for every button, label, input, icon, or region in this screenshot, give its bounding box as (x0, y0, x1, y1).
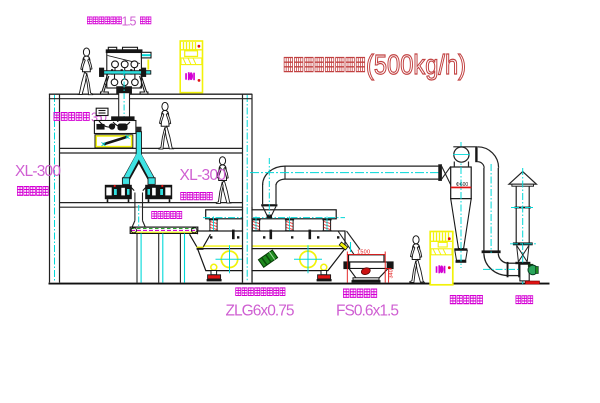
svg-text:1500: 1500 (357, 250, 370, 256)
svg-text:XL-300: XL-300 (180, 167, 227, 184)
svg-text:FS0.6x1.5: FS0.6x1.5 (336, 303, 399, 320)
svg-text:ZLG6x0.75: ZLG6x0.75 (226, 303, 295, 320)
svg-text:1.5: 1.5 (122, 15, 137, 29)
svg-text:XL-300: XL-300 (15, 163, 61, 180)
svg-text:(500kg/h): (500kg/h) (366, 49, 466, 80)
svg-text:340: 340 (388, 269, 394, 278)
svg-text:Φ600: Φ600 (456, 182, 469, 188)
